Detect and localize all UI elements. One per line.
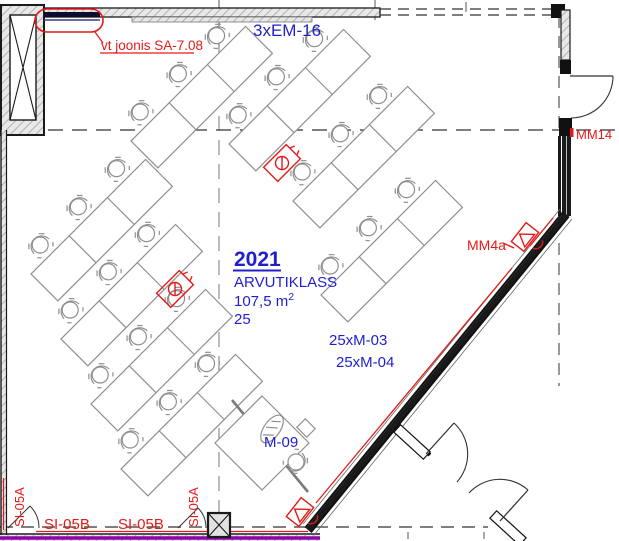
diagonal-wall — [303, 209, 572, 535]
monitors-label-2: 25xM-04 — [336, 354, 394, 371]
monitors-label-1: 25xM-03 — [329, 332, 387, 349]
tray-label-a-left: SI-05A — [12, 487, 27, 527]
top-wall — [44, 4, 565, 22]
room-seats: 25 — [234, 311, 251, 328]
revision-label: vt joonis SA-7.08 — [101, 38, 203, 53]
door-tag: MM14 — [576, 127, 612, 142]
room-area: 107,5 m2 — [234, 291, 294, 310]
cable-label: 3xEM-16 — [253, 21, 321, 40]
tray-label-b2: SI-05B — [118, 516, 164, 533]
door-swing-arc — [469, 479, 528, 493]
teacher-unit-label: M-09 — [264, 434, 298, 451]
wall-tag: MM4a — [467, 237, 506, 253]
ventilation-shaft — [1, 5, 44, 135]
floorplan-drawing: 3xEM-16 vt joonis SA-7.08 2021 ARVUTIKLA… — [0, 0, 619, 541]
wall-opening-marks — [8, 506, 206, 528]
right-wall-door — [558, 10, 613, 216]
column-symbol — [208, 513, 230, 537]
room-name: ARVUTIKLASS — [234, 274, 337, 291]
double-door-partition — [394, 423, 528, 541]
tray-label-a-mid: SI-05A — [186, 487, 201, 527]
door-swing-arc — [571, 76, 613, 118]
door-swing-arc — [454, 423, 468, 482]
tray-label-b1: SI-05B — [44, 516, 90, 533]
room-number: 2021 — [234, 248, 281, 271]
